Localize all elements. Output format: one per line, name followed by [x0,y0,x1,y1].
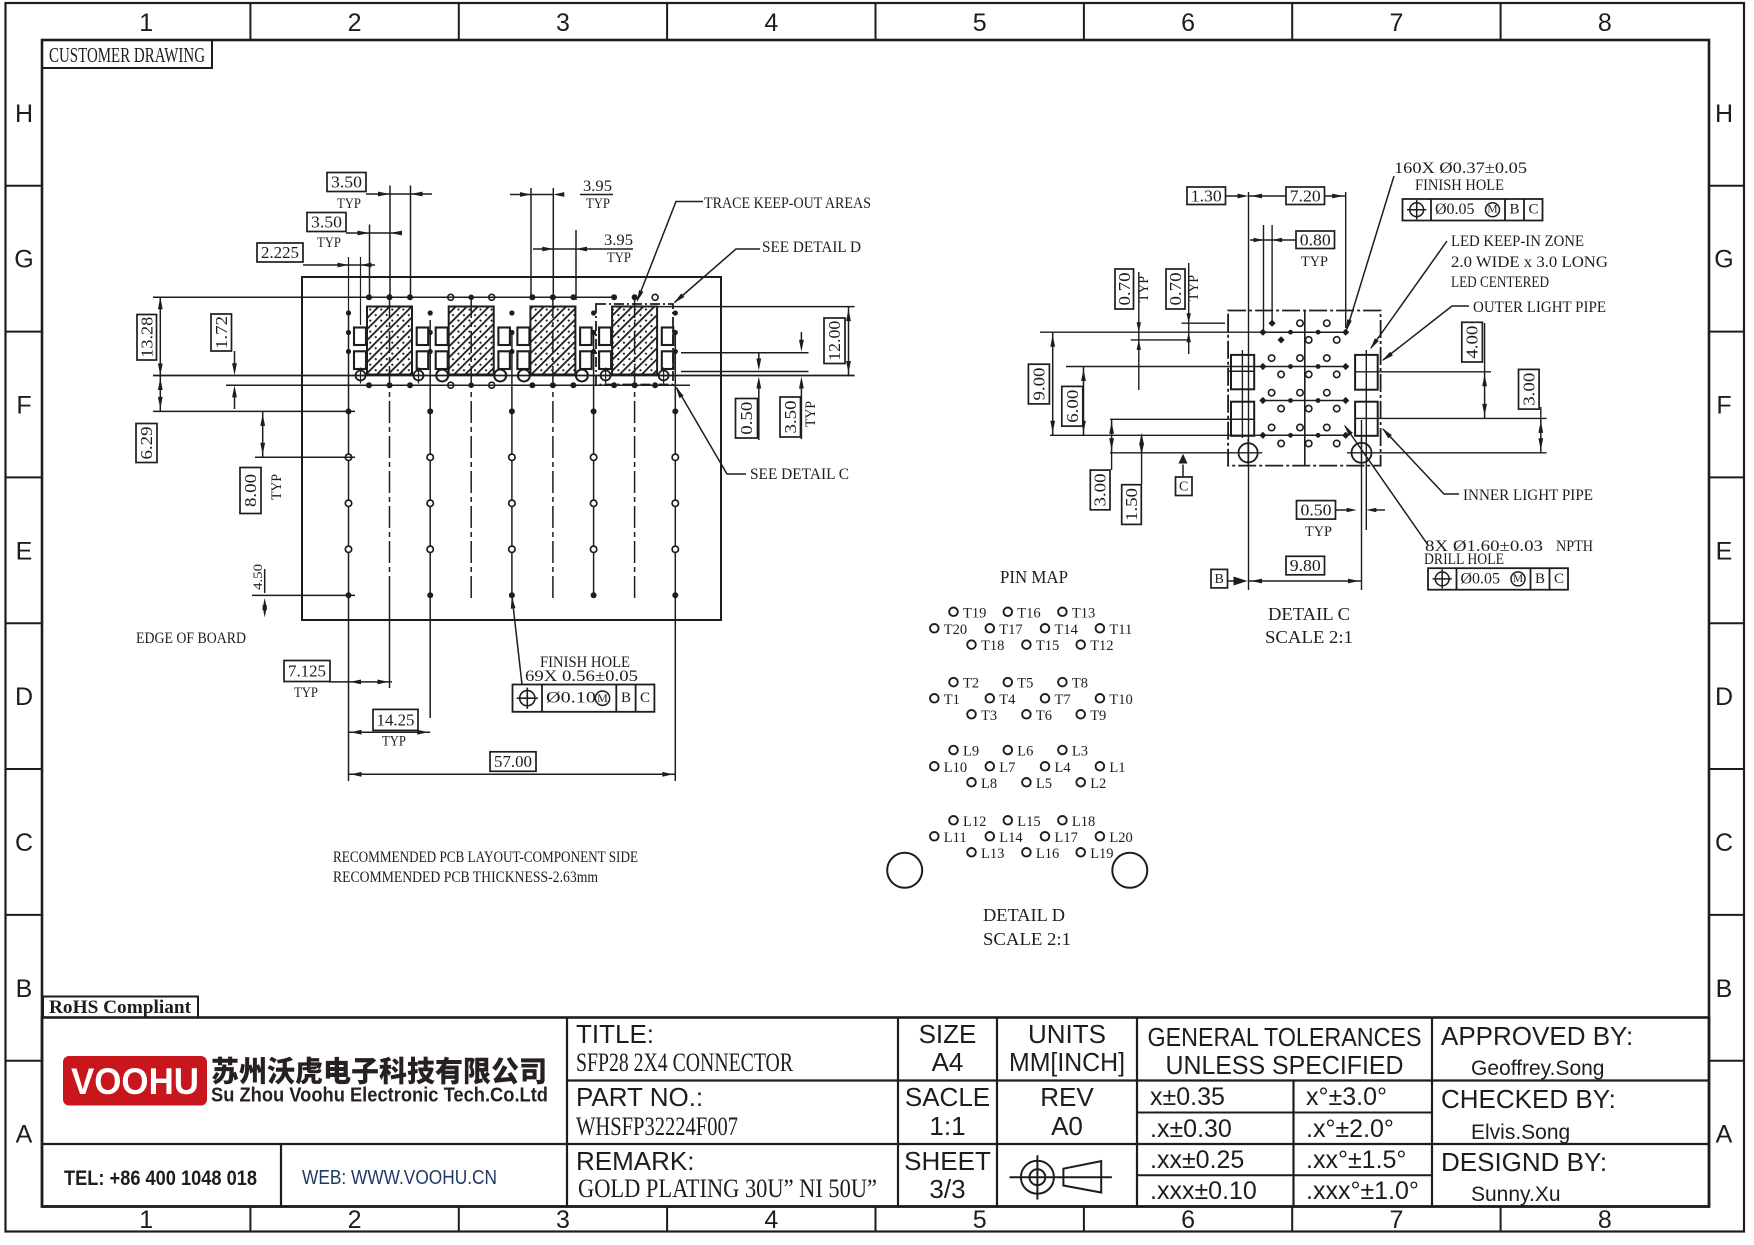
svg-text:3: 3 [556,9,570,37]
svg-text:C: C [1528,202,1538,218]
svg-text:SIZE: SIZE [919,1019,977,1049]
svg-text:INNER LIGHT PIPE: INNER LIGHT PIPE [1463,487,1593,504]
svg-text:SEE DETAIL C: SEE DETAIL C [750,466,849,483]
svg-text:T14: T14 [1055,622,1079,638]
svg-text:A: A [1716,1121,1733,1149]
svg-text:T4: T4 [999,692,1016,708]
svg-text:D: D [15,683,33,711]
svg-text:2: 2 [348,1206,362,1234]
svg-text:M: M [1487,204,1497,216]
svg-text:L11: L11 [944,830,967,846]
svg-text:WHSFP32224F007: WHSFP32224F007 [576,1112,738,1141]
svg-text:L6: L6 [1017,744,1033,760]
svg-text:4: 4 [764,1206,778,1234]
svg-text:VOOHU: VOOHU [71,1061,199,1102]
svg-text:6.29: 6.29 [137,427,156,460]
svg-text:T1: T1 [944,692,960,708]
svg-text:DETAIL C: DETAIL C [1268,604,1350,624]
svg-text:3.50: 3.50 [331,173,362,192]
svg-text:.xx±0.25: .xx±0.25 [1150,1146,1244,1174]
svg-text:6: 6 [1181,1206,1195,1234]
svg-text:C: C [1715,829,1733,857]
svg-text:7: 7 [1389,9,1403,37]
svg-text:5: 5 [973,9,987,37]
svg-text:L17: L17 [1055,830,1078,846]
svg-text:3: 3 [556,1206,570,1234]
svg-text:13.28: 13.28 [137,317,156,358]
svg-text:SCALE 2:1: SCALE 2:1 [1265,627,1353,647]
svg-text:CUSTOMER DRAWING: CUSTOMER DRAWING [49,43,205,67]
svg-text:8.00: 8.00 [241,474,260,507]
svg-text:L12: L12 [963,814,986,830]
svg-text:L19: L19 [1090,846,1113,862]
svg-text:EDGE OF BOARD: EDGE OF BOARD [136,630,246,647]
svg-text:7.20: 7.20 [1290,186,1321,205]
svg-text:0.50: 0.50 [1301,500,1332,519]
svg-text:C: C [640,690,650,706]
svg-text:L20: L20 [1109,830,1132,846]
svg-text:4: 4 [764,9,778,37]
svg-text:B: B [621,690,631,706]
svg-text:1:1: 1:1 [929,1111,965,1141]
svg-text:1: 1 [139,1206,153,1234]
svg-text:LED CENTERED: LED CENTERED [1451,274,1549,291]
svg-text:.x°±2.0°: .x°±2.0° [1306,1115,1394,1143]
svg-text:x±0.35: x±0.35 [1150,1083,1225,1111]
svg-text:T16: T16 [1017,605,1040,621]
svg-text:L13: L13 [981,846,1004,862]
svg-text:CHECKED BY:: CHECKED BY: [1441,1084,1616,1114]
svg-text:DRILL HOLE: DRILL HOLE [1424,551,1504,568]
svg-text:.xx°±1.5°: .xx°±1.5° [1306,1146,1406,1174]
svg-text:FINISH HOLE: FINISH HOLE [1415,177,1504,194]
svg-text:A4: A4 [932,1047,964,1077]
svg-text:B: B [16,975,33,1003]
svg-text:T15: T15 [1036,638,1059,654]
svg-text:3.50: 3.50 [311,213,342,232]
svg-text:D: D [1715,683,1733,711]
svg-text:L3: L3 [1072,744,1088,760]
svg-text:A: A [16,1121,33,1149]
svg-text:T3: T3 [981,708,997,724]
svg-text:14.25: 14.25 [377,710,415,729]
svg-text:3.95: 3.95 [583,178,612,195]
svg-text:.xxx°±1.0°: .xxx°±1.0° [1306,1177,1419,1205]
svg-text:TEL: +86 400 1048 018: TEL: +86 400 1048 018 [64,1167,257,1190]
svg-text:T7: T7 [1055,692,1071,708]
svg-text:TYP: TYP [586,196,610,212]
svg-text:REV: REV [1040,1082,1094,1112]
svg-text:L10: L10 [944,760,967,776]
svg-text:DESIGND BY:: DESIGND BY: [1441,1147,1607,1177]
svg-text:NPTH: NPTH [1556,538,1593,555]
svg-text:7: 7 [1389,1206,1403,1234]
svg-text:REMARK:: REMARK: [576,1146,694,1176]
svg-text:T6: T6 [1036,708,1052,724]
svg-text:B: B [1215,572,1224,587]
svg-text:8: 8 [1598,1206,1612,1234]
svg-text:L14: L14 [999,830,1023,846]
svg-text:TYP: TYP [382,734,406,750]
svg-text:SHEET: SHEET [904,1146,991,1176]
svg-text:H: H [1715,100,1733,128]
svg-text:TYP: TYP [607,250,631,266]
svg-text:C: C [1554,571,1564,587]
svg-text:Sunny.Xu: Sunny.Xu [1471,1183,1561,1206]
svg-text:57.00: 57.00 [494,752,532,771]
svg-text:4.50: 4.50 [250,564,265,590]
svg-text:APPROVED BY:: APPROVED BY: [1441,1021,1633,1051]
svg-text:SEE DETAIL D: SEE DETAIL D [762,239,861,256]
svg-text:3/3: 3/3 [929,1174,965,1204]
svg-text:T11: T11 [1109,622,1132,638]
svg-text:C: C [15,829,33,857]
svg-text:L18: L18 [1072,814,1095,830]
svg-text:5: 5 [973,1206,987,1234]
svg-text:B: B [1509,202,1519,218]
svg-text:Ø0.05: Ø0.05 [1435,201,1475,218]
svg-text:0.70: 0.70 [1115,273,1134,306]
svg-text:TYP: TYP [1301,254,1328,270]
svg-text:L9: L9 [963,744,979,760]
svg-text:Ø0.10: Ø0.10 [546,690,596,707]
svg-text:Geoffrey.Song: Geoffrey.Song [1471,1057,1604,1080]
svg-text:1: 1 [139,9,153,37]
svg-text:0.70: 0.70 [1166,273,1185,306]
svg-text:L2: L2 [1090,776,1106,792]
svg-text:PART NO.:: PART NO.: [576,1082,703,1112]
svg-text:SACLE: SACLE [905,1082,990,1112]
svg-text:F: F [1716,392,1731,420]
svg-text:UNITS: UNITS [1028,1019,1106,1049]
svg-text:1.72: 1.72 [212,316,231,349]
svg-text:T13: T13 [1072,605,1095,621]
svg-text:1.50: 1.50 [1122,488,1141,521]
svg-text:G: G [1714,246,1733,274]
svg-text:160X Ø0.37±0.05: 160X Ø0.37±0.05 [1394,160,1527,177]
svg-text:6: 6 [1181,9,1195,37]
svg-text:L16: L16 [1036,846,1059,862]
svg-text:Ø0.05: Ø0.05 [1461,570,1501,587]
svg-text:.xxx±0.10: .xxx±0.10 [1150,1177,1257,1205]
svg-text:TYP: TYP [317,235,341,251]
svg-text:OUTER LIGHT PIPE: OUTER LIGHT PIPE [1473,299,1606,316]
svg-text:9.80: 9.80 [1290,556,1321,575]
svg-text:L8: L8 [981,776,997,792]
svg-text:T17: T17 [999,622,1022,638]
svg-text:T12: T12 [1090,638,1113,654]
svg-text:7.125: 7.125 [288,662,326,681]
svg-text:M: M [1513,573,1523,585]
svg-text:TYP: TYP [803,401,819,427]
svg-text:F: F [16,392,31,420]
svg-text:3.95: 3.95 [604,232,633,249]
svg-text:0.80: 0.80 [1300,230,1331,249]
svg-text:9.00: 9.00 [1029,368,1048,401]
svg-text:G: G [14,246,33,274]
svg-text:MM[INCH]: MM[INCH] [1009,1047,1125,1077]
svg-text:L15: L15 [1017,814,1040,830]
svg-text:2.225: 2.225 [261,243,299,262]
svg-text:B: B [1535,571,1545,587]
svg-text:L1: L1 [1109,760,1125,776]
svg-text:4.00: 4.00 [1463,326,1482,359]
svg-text:E: E [16,537,33,565]
svg-text:1.30: 1.30 [1191,186,1222,205]
svg-text:T2: T2 [963,676,979,692]
svg-text:Elvis.Song: Elvis.Song [1471,1121,1570,1144]
svg-text:TRACE KEEP-OUT AREAS: TRACE KEEP-OUT AREAS [704,195,871,212]
svg-text:0.50: 0.50 [737,402,756,435]
svg-text:PIN MAP: PIN MAP [1000,567,1068,587]
svg-text:L5: L5 [1036,776,1052,792]
svg-text:T8: T8 [1072,676,1088,692]
svg-text:3.50: 3.50 [781,401,800,434]
svg-text:3.00: 3.00 [1091,473,1110,506]
svg-text:UNLESS SPECIFIED: UNLESS SPECIFIED [1166,1050,1404,1080]
svg-text:E: E [1716,537,1733,565]
svg-text:TYP: TYP [1305,524,1332,540]
svg-text:WEB: WWW.VOOHU.CN: WEB: WWW.VOOHU.CN [302,1167,497,1189]
svg-text:GENERAL TOLERANCES: GENERAL TOLERANCES [1148,1022,1422,1052]
svg-text:RECOMMENDED PCB THICKNESS-2.63: RECOMMENDED PCB THICKNESS-2.63mm [333,869,598,886]
svg-text:T20: T20 [944,622,967,638]
svg-text:TYP: TYP [294,685,318,701]
svg-text:TITLE:: TITLE: [576,1019,654,1049]
svg-text:C: C [1179,480,1188,495]
svg-text:12.00: 12.00 [825,321,844,361]
svg-text:x°±3.0°: x°±3.0° [1306,1083,1387,1111]
svg-text:6.00: 6.00 [1063,390,1082,423]
svg-text:Su Zhou Voohu Electronic Tech.: Su Zhou Voohu Electronic Tech.Co.Ltd [211,1085,548,1107]
svg-text:.x±0.30: .x±0.30 [1150,1115,1232,1143]
svg-text:SCALE 2:1: SCALE 2:1 [983,929,1071,949]
svg-text:T5: T5 [1017,676,1033,692]
svg-text:2: 2 [348,9,362,37]
svg-text:T10: T10 [1109,692,1132,708]
svg-text:TYP: TYP [269,474,285,500]
svg-text:T18: T18 [981,638,1004,654]
svg-text:L7: L7 [999,760,1015,776]
svg-text:SFP28 2X4 CONNECTOR: SFP28 2X4 CONNECTOR [576,1048,793,1077]
svg-text:69X 0.56±0.05: 69X 0.56±0.05 [525,668,638,685]
svg-text:DETAIL D: DETAIL D [983,905,1065,925]
svg-text:L4: L4 [1055,760,1072,776]
svg-text:8: 8 [1598,9,1612,37]
svg-text:RoHS Compliant: RoHS Compliant [49,997,192,1018]
svg-text:H: H [15,100,33,128]
svg-text:M: M [597,691,608,705]
svg-text:T19: T19 [963,605,986,621]
svg-text:3.00: 3.00 [1519,373,1538,406]
svg-text:RECOMMENDED PCB LAYOUT-COMPONE: RECOMMENDED PCB LAYOUT-COMPONENT SIDE [333,849,638,866]
svg-text:GOLD PLATING 30U” NI 50U”: GOLD PLATING 30U” NI 50U” [578,1174,877,1203]
svg-text:T9: T9 [1090,708,1106,724]
svg-text:TYP: TYP [337,196,361,212]
svg-text:2.0 WIDE x 3.0 LONG: 2.0 WIDE x 3.0 LONG [1451,254,1608,271]
svg-text:A0: A0 [1051,1111,1083,1141]
svg-text:B: B [1716,975,1733,1003]
svg-text:LED KEEP-IN ZONE: LED KEEP-IN ZONE [1451,233,1584,250]
